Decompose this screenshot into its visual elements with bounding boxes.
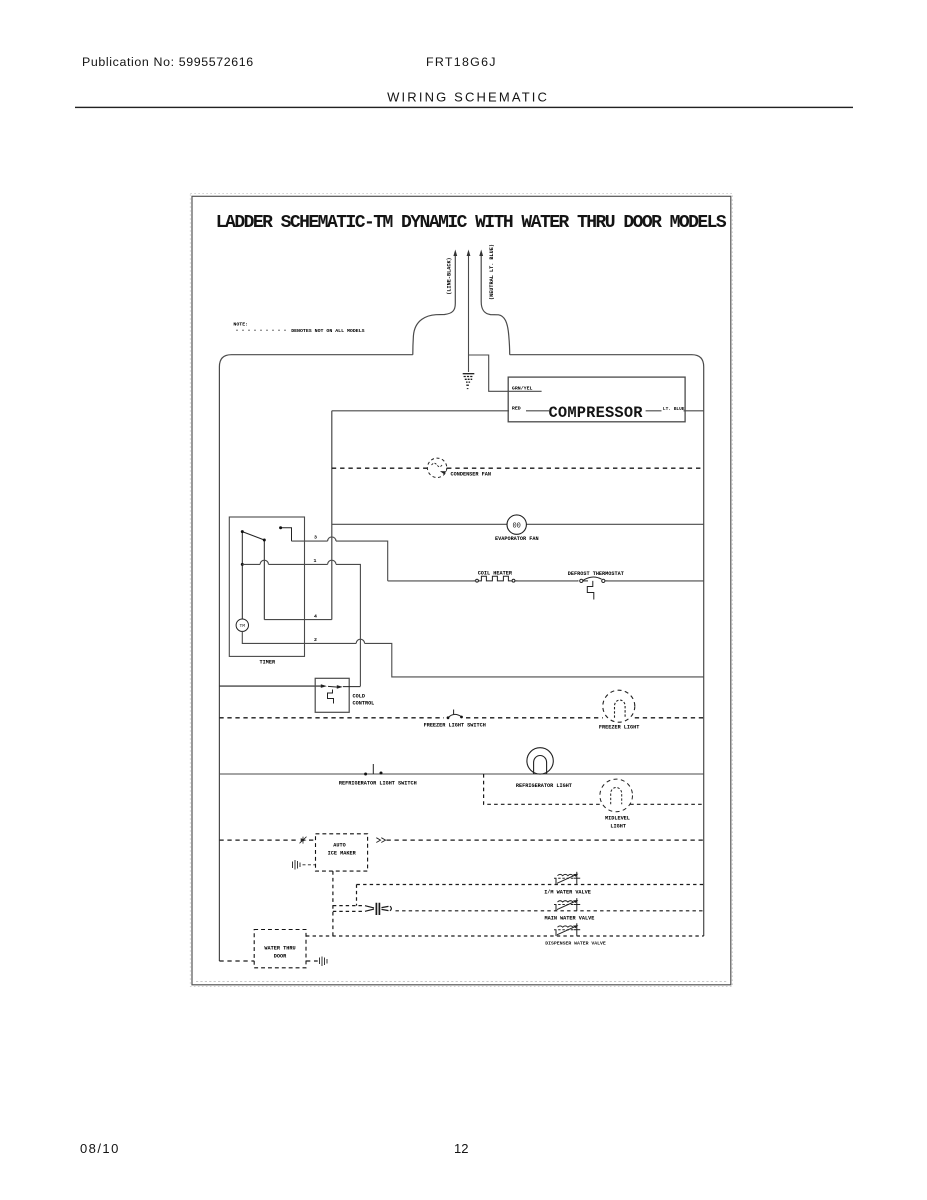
svg-text:WIRING SCHEMATIC: WIRING SCHEMATIC: [387, 90, 549, 105]
svg-text:(NEUTRAL LT. BLUE): (NEUTRAL LT. BLUE): [489, 244, 495, 300]
svg-text:FRT18G6J: FRT18G6J: [426, 55, 497, 69]
svg-text:MAIN WATER VALVE: MAIN WATER VALVE: [545, 916, 595, 922]
svg-text:3: 3: [314, 535, 317, 541]
svg-text:I/M WATER VALVE: I/M WATER VALVE: [544, 890, 591, 896]
svg-text:DISPENSER WATER VALVE: DISPENSER WATER VALVE: [545, 941, 606, 947]
svg-text:ICE MAKER: ICE MAKER: [328, 851, 357, 857]
svg-text:COIL HEATER: COIL HEATER: [478, 571, 513, 577]
svg-text:EVAPORATOR FAN: EVAPORATOR FAN: [495, 536, 539, 542]
svg-text:REFRIGERATOR LIGHT: REFRIGERATOR LIGHT: [516, 783, 572, 789]
svg-text:00: 00: [512, 522, 520, 530]
svg-text:FREEZER LIGHT SWITCH: FREEZER LIGHT SWITCH: [424, 723, 486, 729]
svg-text:TIMER: TIMER: [260, 659, 276, 665]
svg-text:(LINE-BLACK): (LINE-BLACK): [447, 257, 453, 294]
svg-text:TM: TM: [240, 623, 246, 629]
svg-text:COMPRESSOR: COMPRESSOR: [549, 404, 644, 422]
svg-text:08/10: 08/10: [80, 1141, 120, 1156]
svg-text:FREEZER LIGHT: FREEZER LIGHT: [599, 725, 639, 731]
svg-text:4: 4: [314, 613, 317, 619]
svg-text:12: 12: [454, 1141, 468, 1156]
svg-text:LT. BLUE: LT. BLUE: [663, 406, 685, 412]
svg-text:DEFROST THERMOSTAT: DEFROST THERMOSTAT: [568, 571, 624, 577]
svg-text:Publication No: 5995572616: Publication No: 5995572616: [82, 55, 254, 69]
svg-text:NOTE:: NOTE:: [233, 322, 248, 328]
svg-text:DENOTES NOT ON ALL MODELS: DENOTES NOT ON ALL MODELS: [291, 328, 364, 334]
svg-text:GRN/YEL: GRN/YEL: [512, 385, 533, 391]
svg-text:AUTO: AUTO: [333, 843, 345, 849]
svg-text:WATER THRU: WATER THRU: [264, 946, 295, 952]
svg-text:2: 2: [314, 637, 317, 643]
svg-text:CONDENSER FAN: CONDENSER FAN: [451, 471, 491, 477]
svg-text:1: 1: [314, 558, 317, 564]
svg-text:RED: RED: [512, 406, 521, 412]
svg-text:LADDER SCHEMATIC-TM DYNAMIC WI: LADDER SCHEMATIC-TM DYNAMIC WITH WATER T…: [216, 213, 727, 233]
svg-text:CONTROL: CONTROL: [353, 701, 375, 707]
svg-text:MIDLEVEL: MIDLEVEL: [605, 816, 630, 822]
svg-text:LIGHT: LIGHT: [610, 824, 626, 830]
svg-text:DOOR: DOOR: [274, 954, 287, 960]
svg-text:COLD: COLD: [353, 694, 365, 700]
svg-text:REFRIGERATOR LIGHT SWITCH: REFRIGERATOR LIGHT SWITCH: [339, 780, 417, 786]
